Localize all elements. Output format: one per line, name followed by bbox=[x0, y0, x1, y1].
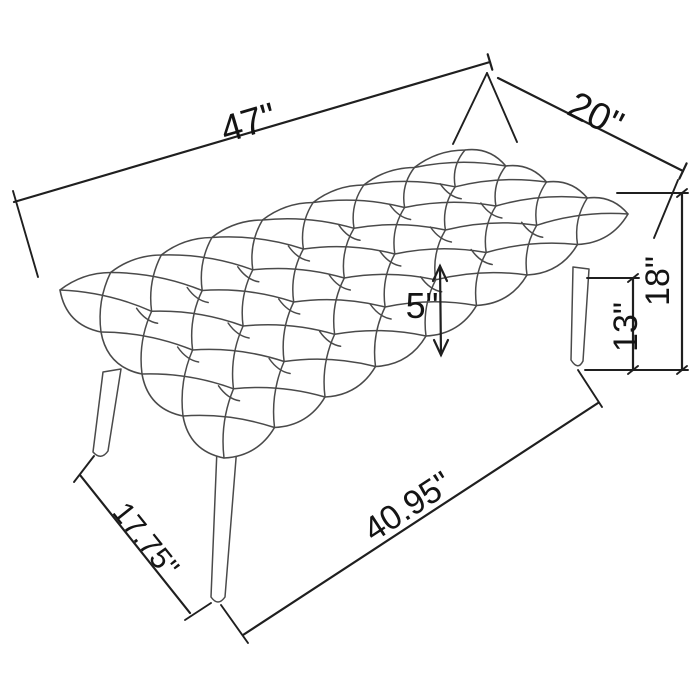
seat-outline bbox=[60, 150, 628, 458]
dimension-diagram-page: 47" 20" 18" 13" 5" 17.75" 40.95" bbox=[0, 0, 700, 700]
dimension-label-height: 18" bbox=[639, 256, 677, 306]
dimension-label-depth: 20" bbox=[561, 84, 630, 147]
witness-20-right bbox=[654, 180, 678, 238]
witness-47-right bbox=[453, 73, 487, 144]
dimension-label-leg-span-depth: 17.75" bbox=[106, 496, 185, 584]
leg-front-right bbox=[211, 446, 237, 602]
bench-tufted-seat bbox=[60, 150, 628, 458]
witness-1775-top bbox=[74, 456, 94, 482]
dimension-label-cushion-thickness: 5" bbox=[406, 285, 439, 326]
leg-rear-right bbox=[571, 267, 589, 366]
witness-47-left bbox=[13, 191, 38, 277]
dimension-label-width: 47" bbox=[216, 95, 281, 151]
witness-4095-left bbox=[221, 605, 248, 643]
leg-front-left bbox=[93, 369, 121, 456]
witness-4095-right bbox=[578, 370, 602, 407]
dimension-label-seat-clearance: 13" bbox=[607, 302, 645, 352]
bench-dimension-drawing: 47" 20" 18" 13" 5" 17.75" 40.95" bbox=[0, 0, 700, 700]
arrow-5-shaft bbox=[440, 266, 441, 355]
witness-20-left bbox=[487, 73, 517, 142]
dimension-label-leg-span-width: 40.95" bbox=[357, 464, 459, 549]
tick-20-right bbox=[679, 163, 686, 178]
